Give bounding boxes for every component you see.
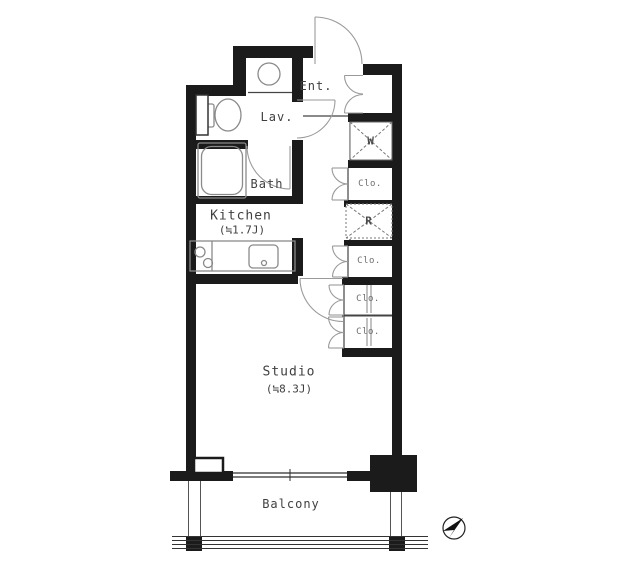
washer-label: W <box>367 135 375 148</box>
room-label-kitchen: Kitchen <box>210 209 272 224</box>
compass-icon <box>443 517 465 539</box>
stove-burner-icon <box>195 247 205 257</box>
wall <box>342 277 402 285</box>
fridge-label: R <box>365 215 373 228</box>
closet-door-swing <box>329 285 344 300</box>
floor-plan: Ent. Lav. Bath Kitchen (≒1.7J) Studio (≒… <box>0 0 640 569</box>
wall <box>348 113 402 122</box>
room-size-kitchen: (≒1.7J) <box>219 224 265 237</box>
room-label-bath: Bath <box>251 177 284 191</box>
wall <box>292 140 303 204</box>
wall <box>344 240 402 246</box>
closet-door-swing <box>345 95 364 114</box>
wall <box>186 140 248 149</box>
low-counter-box <box>194 458 223 473</box>
closet-door-swing <box>333 246 349 262</box>
sink-drain-icon <box>262 261 267 266</box>
closet-label: Clo. <box>357 256 381 266</box>
closet-door-swing <box>332 168 348 184</box>
wall <box>186 274 298 284</box>
pipe-space <box>196 95 208 135</box>
wall-right-outer <box>392 64 402 455</box>
wall <box>347 471 370 481</box>
closet-door-swing <box>329 300 344 315</box>
closet-label: Clo. <box>358 179 382 189</box>
wall <box>348 160 402 168</box>
stove-burner-icon <box>204 259 213 268</box>
entrance-door-swing <box>315 17 362 64</box>
closet-door-swing <box>332 184 348 200</box>
wall <box>342 348 402 357</box>
water-heater-icon <box>258 63 280 85</box>
bathtub-icon <box>198 143 246 198</box>
room-label-lavatory: Lav. <box>261 110 294 124</box>
column <box>370 455 417 492</box>
lavatory-door-swing <box>297 100 335 138</box>
wall <box>292 46 303 102</box>
wall <box>186 196 303 204</box>
closet-label: Clo. <box>356 294 380 304</box>
room-size-studio: (≒8.3J) <box>266 383 312 396</box>
room-label-studio: Studio <box>263 365 316 380</box>
toilet-icon <box>215 99 241 131</box>
kitchen-sink-icon <box>249 245 278 268</box>
closet-label: Clo. <box>356 327 380 337</box>
closet-door-swing <box>329 333 345 349</box>
room-label-balcony: Balcony <box>262 497 320 511</box>
room-label-entrance: Ent. <box>300 79 333 93</box>
bathtub-inner-icon <box>202 147 243 195</box>
closet-door-swing <box>345 76 364 95</box>
closet-door-swing <box>333 262 349 278</box>
wall <box>292 238 303 276</box>
